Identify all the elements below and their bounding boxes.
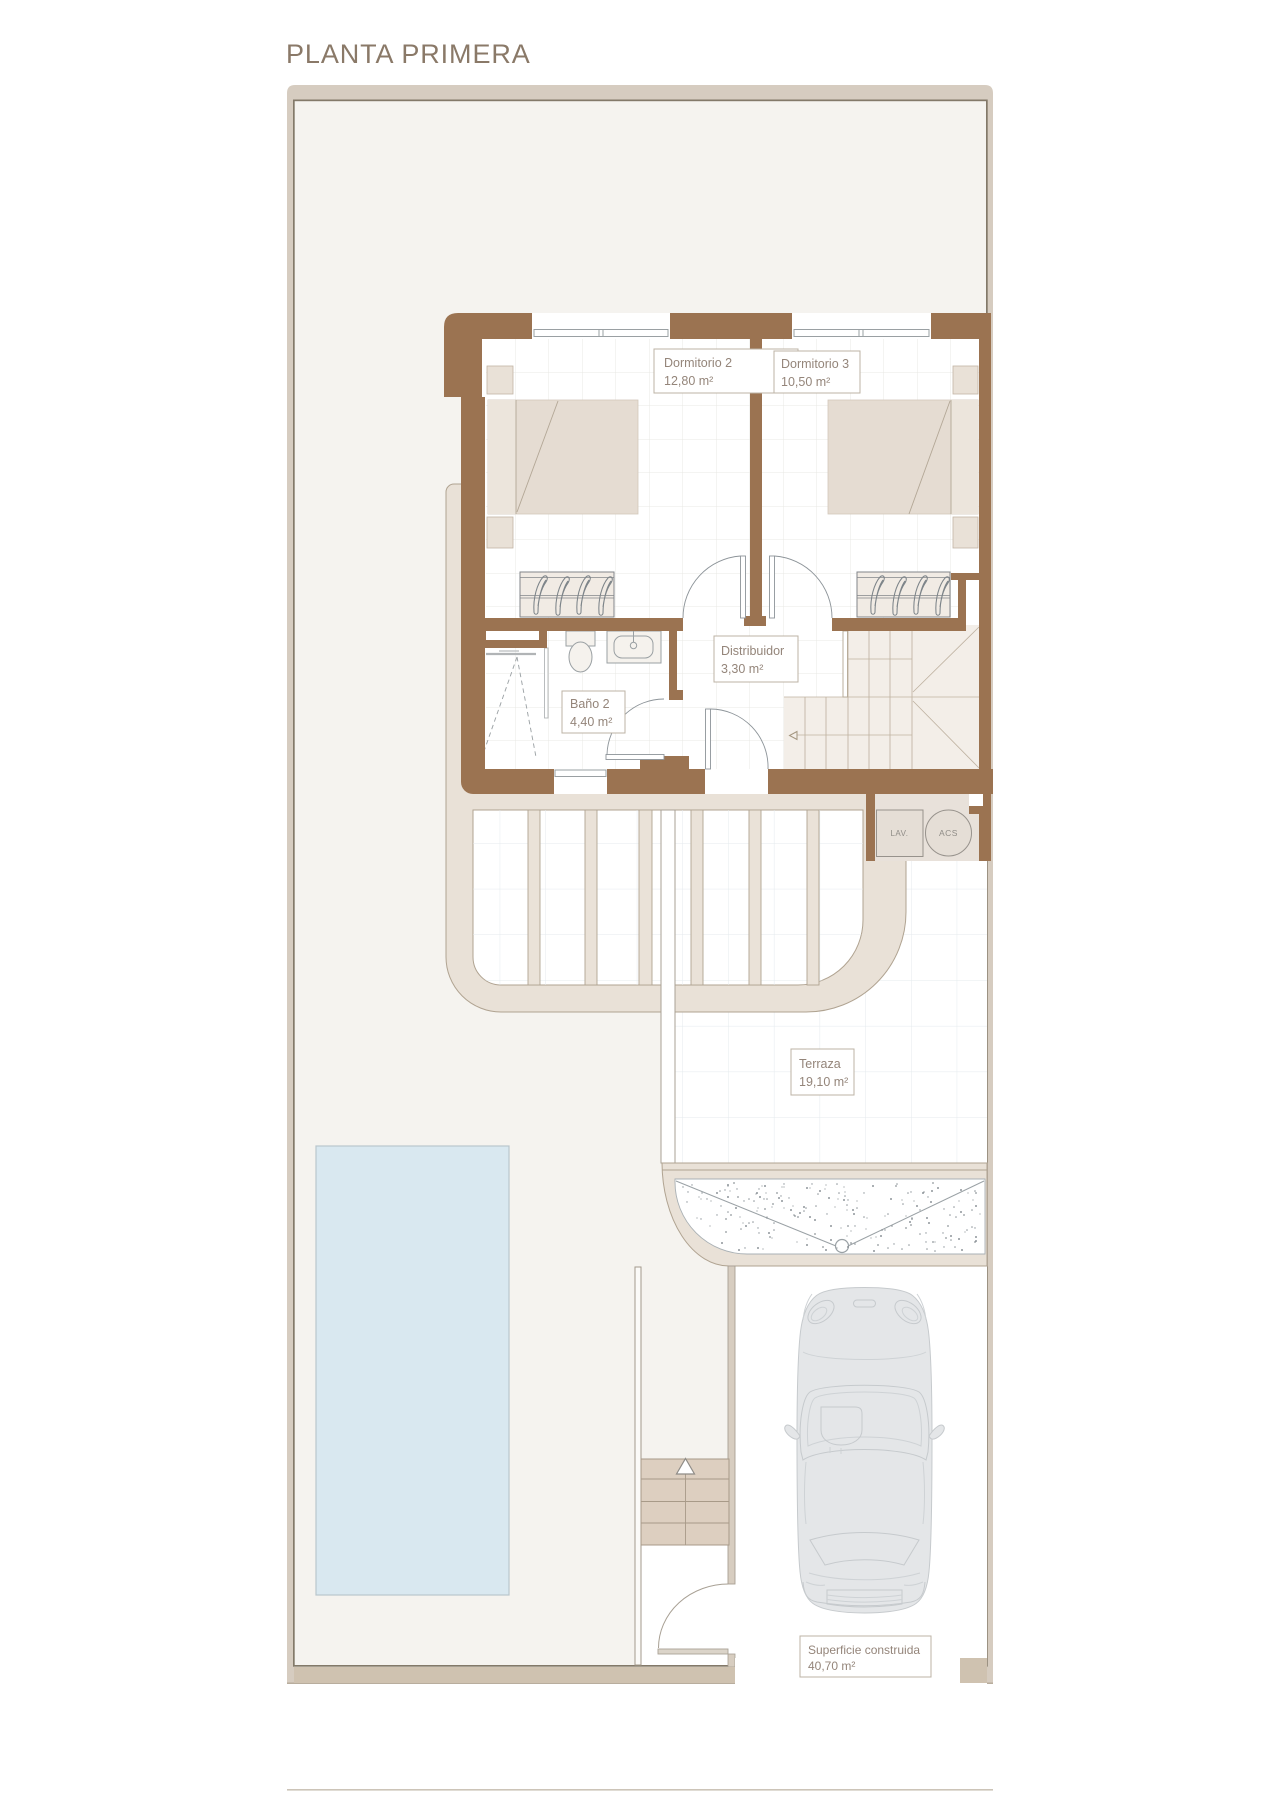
svg-text:12,80 m²: 12,80 m²	[664, 374, 713, 388]
svg-text:3,30 m²: 3,30 m²	[721, 662, 763, 676]
svg-text:LAV.: LAV.	[890, 829, 908, 838]
svg-text:PLANTA PRIMERA: PLANTA PRIMERA	[286, 39, 531, 69]
svg-text:4,40 m²: 4,40 m²	[570, 715, 612, 729]
svg-text:Terraza: Terraza	[799, 1057, 841, 1071]
svg-text:40,70 m²: 40,70 m²	[808, 1659, 855, 1673]
svg-text:Baño 2: Baño 2	[570, 697, 610, 711]
svg-text:Dormitorio 3: Dormitorio 3	[781, 357, 849, 371]
svg-text:Dormitorio 2: Dormitorio 2	[664, 356, 732, 370]
svg-text:19,10 m²: 19,10 m²	[799, 1075, 848, 1089]
svg-text:ACS: ACS	[939, 828, 958, 838]
svg-text:Distribuidor: Distribuidor	[721, 644, 784, 658]
svg-text:Superficie construida: Superficie construida	[808, 1643, 920, 1657]
svg-text:10,50 m²: 10,50 m²	[781, 375, 830, 389]
